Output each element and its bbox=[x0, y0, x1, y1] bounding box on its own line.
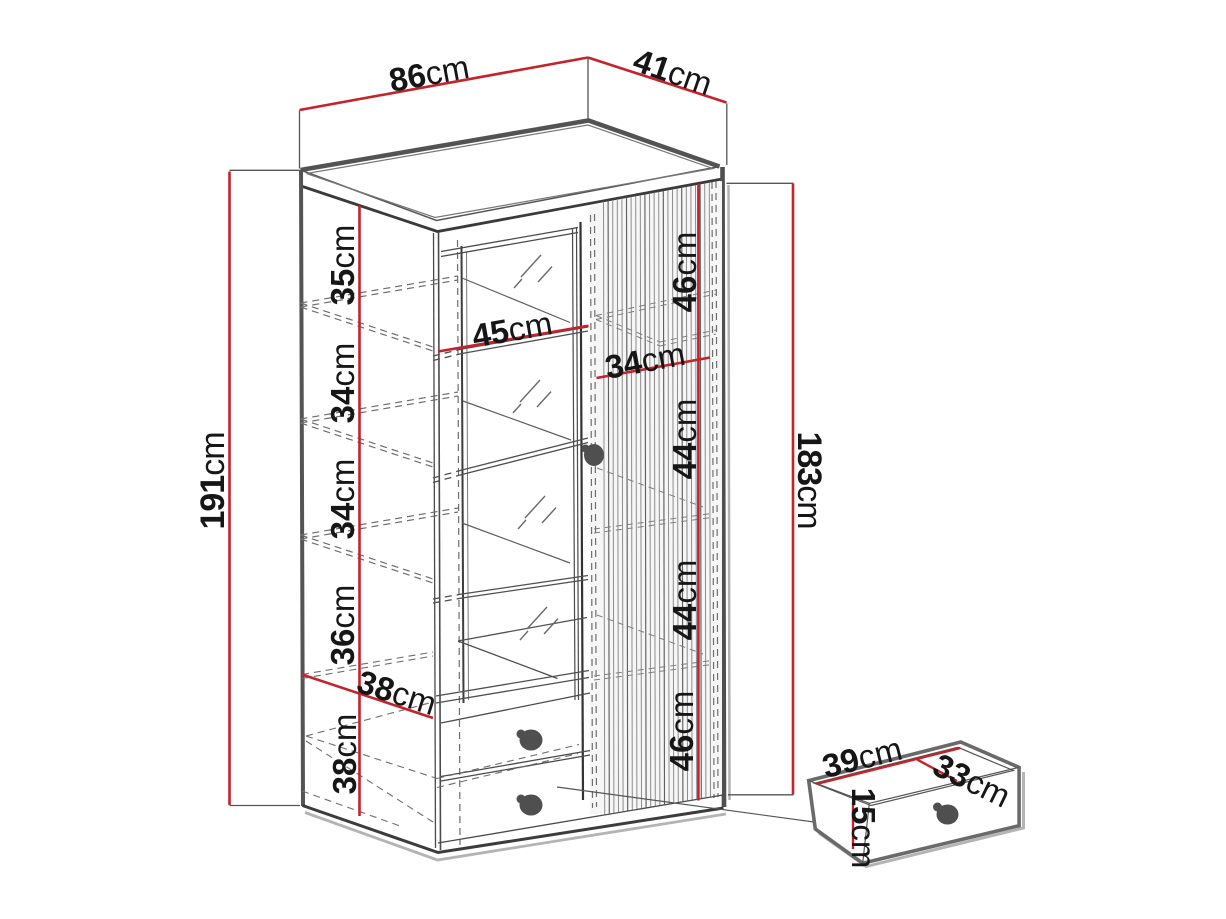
svg-text:34cm: 34cm bbox=[324, 343, 361, 424]
svg-text:36cm: 36cm bbox=[324, 585, 361, 666]
svg-text:34cm: 34cm bbox=[324, 459, 361, 540]
svg-text:44cm: 44cm bbox=[666, 399, 703, 480]
svg-text:38cm: 38cm bbox=[326, 714, 363, 795]
svg-text:183cm: 183cm bbox=[790, 431, 828, 528]
svg-text:15cm: 15cm bbox=[845, 788, 882, 869]
svg-text:191cm: 191cm bbox=[194, 432, 232, 529]
svg-text:46cm: 46cm bbox=[663, 691, 700, 772]
svg-text:44cm: 44cm bbox=[666, 560, 703, 641]
svg-text:35cm: 35cm bbox=[324, 225, 361, 306]
svg-text:46cm: 46cm bbox=[666, 232, 703, 313]
